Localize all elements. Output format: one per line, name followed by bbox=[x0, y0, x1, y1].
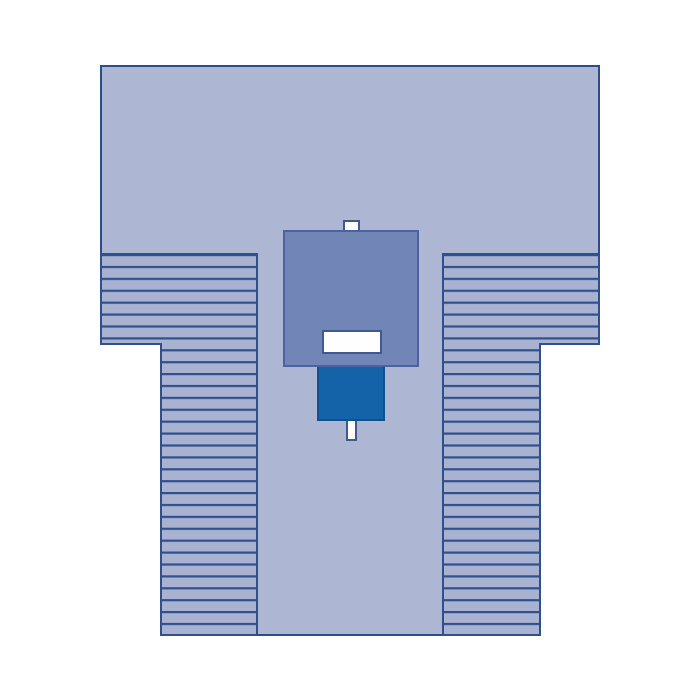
incise-film-panel bbox=[318, 366, 384, 420]
fanfold-pleats-left-lines bbox=[101, 254, 257, 635]
surgical-drape-figure bbox=[0, 0, 700, 700]
fanfold-pleats-right-lines bbox=[443, 254, 599, 635]
illustration-canvas bbox=[0, 0, 700, 700]
bottom-adhesive-tab bbox=[347, 418, 356, 440]
fenestration-aperture bbox=[323, 331, 381, 353]
